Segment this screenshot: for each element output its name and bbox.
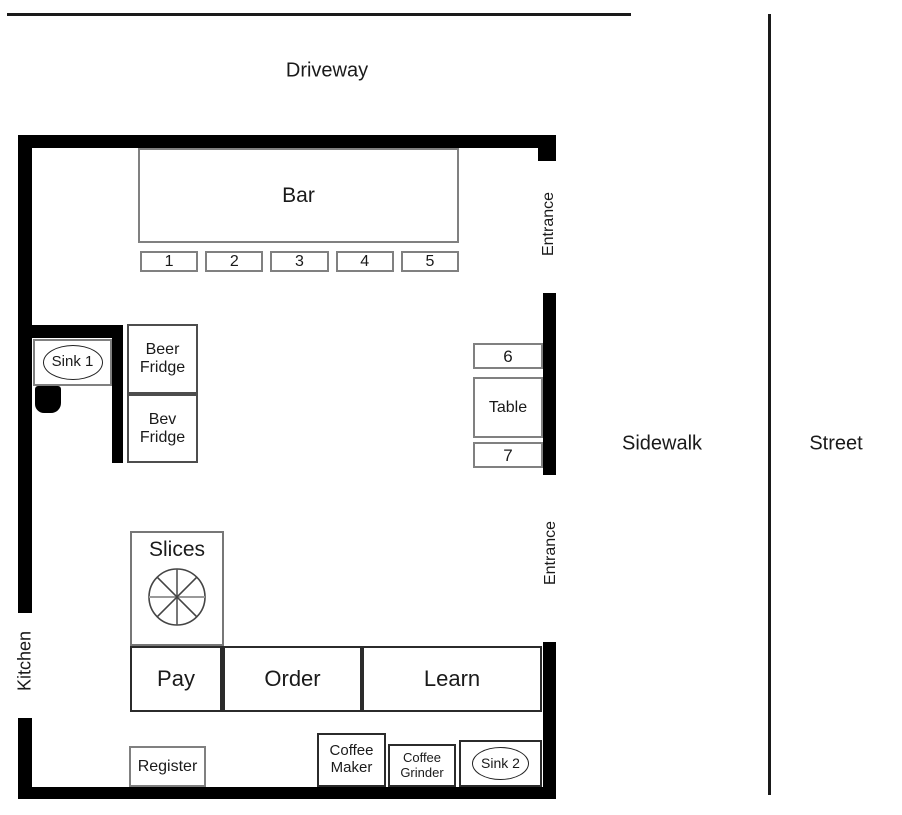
bar-seat-4: 4 [336, 251, 394, 272]
slices-display: Slices [130, 531, 224, 646]
bar-seat-2: 2 [205, 251, 263, 272]
bar-seat-3: 3 [270, 251, 328, 272]
pizza-slices-icon [147, 567, 207, 627]
street-edge-line [768, 14, 771, 795]
coffee-grinder: Coffee Grinder [388, 744, 456, 787]
bar-label: Bar [282, 184, 315, 208]
driveway-edge-line [7, 13, 631, 16]
wall-bottom [18, 787, 556, 799]
entrance-top-label: Entrance [540, 192, 558, 256]
sink2-basin: Sink 2 [472, 747, 529, 780]
sink2-label: Sink 2 [481, 756, 520, 772]
wall-top [18, 135, 556, 148]
sink1-label: Sink 1 [52, 354, 94, 371]
wall-right-lower [543, 642, 556, 799]
bar-seat-1: 1 [140, 251, 198, 272]
entrance-bottom-label: Entrance [542, 521, 560, 585]
driveway-label: Driveway [286, 60, 368, 83]
slices-label: Slices [149, 538, 205, 562]
sink1-station: Sink 1 [33, 339, 112, 386]
inner-wall-vertical [112, 325, 123, 463]
beer-fridge: Beer Fridge [127, 324, 198, 394]
coffee-maker: Coffee Maker [317, 733, 386, 787]
wall-left-upper [18, 135, 32, 613]
window-table: Table [473, 377, 543, 438]
bar-seat-row: 1 2 3 4 5 [140, 251, 459, 272]
counter-learn: Learn [362, 646, 542, 712]
counter-order: Order [223, 646, 362, 712]
counter-pay: Pay [130, 646, 223, 712]
sink2-station: Sink 2 [459, 740, 542, 787]
wall-right-middle [543, 293, 556, 475]
register: Register [129, 746, 206, 787]
sink1-floor-mat [35, 386, 61, 413]
table-seat-6: 6 [473, 343, 543, 369]
inner-wall-horizontal [32, 325, 123, 338]
bar-seat-5: 5 [401, 251, 459, 272]
bar-counter: Bar [138, 148, 459, 243]
wall-top-right-end [538, 148, 556, 161]
sink1-basin: Sink 1 [43, 345, 103, 380]
table-seat-7: 7 [473, 442, 543, 468]
sidewalk-label: Sidewalk [622, 433, 702, 456]
street-label: Street [809, 433, 862, 456]
kitchen-label: Kitchen [15, 631, 36, 691]
bev-fridge: Bev Fridge [127, 394, 198, 463]
floor-plan: Driveway Sidewalk Street Kitchen Entranc… [0, 0, 902, 815]
